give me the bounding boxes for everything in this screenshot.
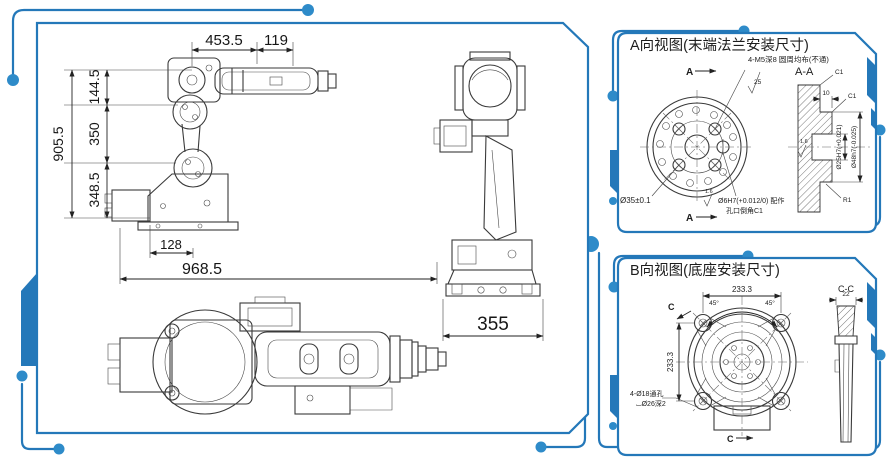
dim-forearm-reach: 453.5 — [205, 32, 243, 49]
pitch-circle-label: Ø35±0.1 — [620, 196, 651, 205]
dim-total-height: 905.5 — [50, 126, 66, 161]
pin-hole-label: Ø6H7(+0.012/0) 配作 — [718, 196, 784, 205]
dim-wrist-ext: 119 — [264, 32, 288, 49]
dim-shoulder-height: 348.5 — [86, 172, 102, 207]
dim-wrist-height: 144.5 — [86, 69, 102, 104]
view-arrow-c-top-label: C — [668, 302, 675, 312]
view-arrow-a-top-label: A — [686, 67, 693, 78]
section-a-a-title: A-A — [795, 66, 814, 78]
chamfer-b-label: C1 — [848, 93, 857, 100]
dim-base-offset: 128 — [160, 237, 182, 252]
angle-right-label: 45° — [765, 299, 775, 307]
hole-spacing-h-label: 233.3 — [732, 285, 753, 294]
spigot-label: Ø48h7(-0.025) — [851, 126, 858, 168]
panel-a-title: A向视图(末端法兰安装尺寸) — [630, 37, 809, 54]
finish-bore-label: 1.6 — [800, 139, 808, 145]
angle-left-label: 45° — [709, 299, 719, 307]
panel-b-title: B向视图(底座安装尺寸) — [630, 262, 780, 279]
chamfer-a-label: C1 — [835, 69, 844, 76]
chamfer-note-label: 孔口倒角C1 — [726, 206, 763, 215]
panel-a-flange-view: A向视图(末端法兰安装尺寸) — [618, 33, 876, 232]
dim-total-reach: 968.5 — [182, 261, 222, 278]
hole-spacing-v-label: 233.3 — [666, 351, 675, 372]
main-drawing-panel: 905.5 144.5 350 348.5 453.5 119 128 968.… — [37, 23, 588, 433]
bolt-pattern-label: 4-M5深8 圆周均布(不通) — [748, 54, 829, 64]
technical-drawing-page: 905.5 144.5 350 348.5 453.5 119 128 968.… — [0, 0, 891, 466]
holes-label: 4-Ø18通孔 — [630, 389, 663, 398]
finish-top-label: 25 — [754, 79, 762, 86]
view-arrow-a-bottom-label: A — [686, 213, 693, 224]
drawing-canvas: 905.5 144.5 350 348.5 453.5 119 128 968.… — [0, 0, 891, 466]
section-width-label: 22 — [842, 291, 850, 298]
fillet-label: R1 — [843, 197, 852, 204]
dim-base-width: 355 — [477, 314, 509, 335]
panel-b-base-view: B向视图(底座安装尺寸) — [618, 258, 876, 455]
dim-upper-arm: 350 — [86, 122, 102, 146]
counterbore-label: ⌴Ø26深2 — [636, 399, 666, 408]
spigot-depth-label: 10 — [822, 90, 830, 97]
finish-pin-label: 1.6 — [705, 189, 713, 195]
view-arrow-c-bottom-label: C — [727, 434, 734, 444]
bore-label: Ø25H7(+0.021) — [836, 125, 843, 170]
